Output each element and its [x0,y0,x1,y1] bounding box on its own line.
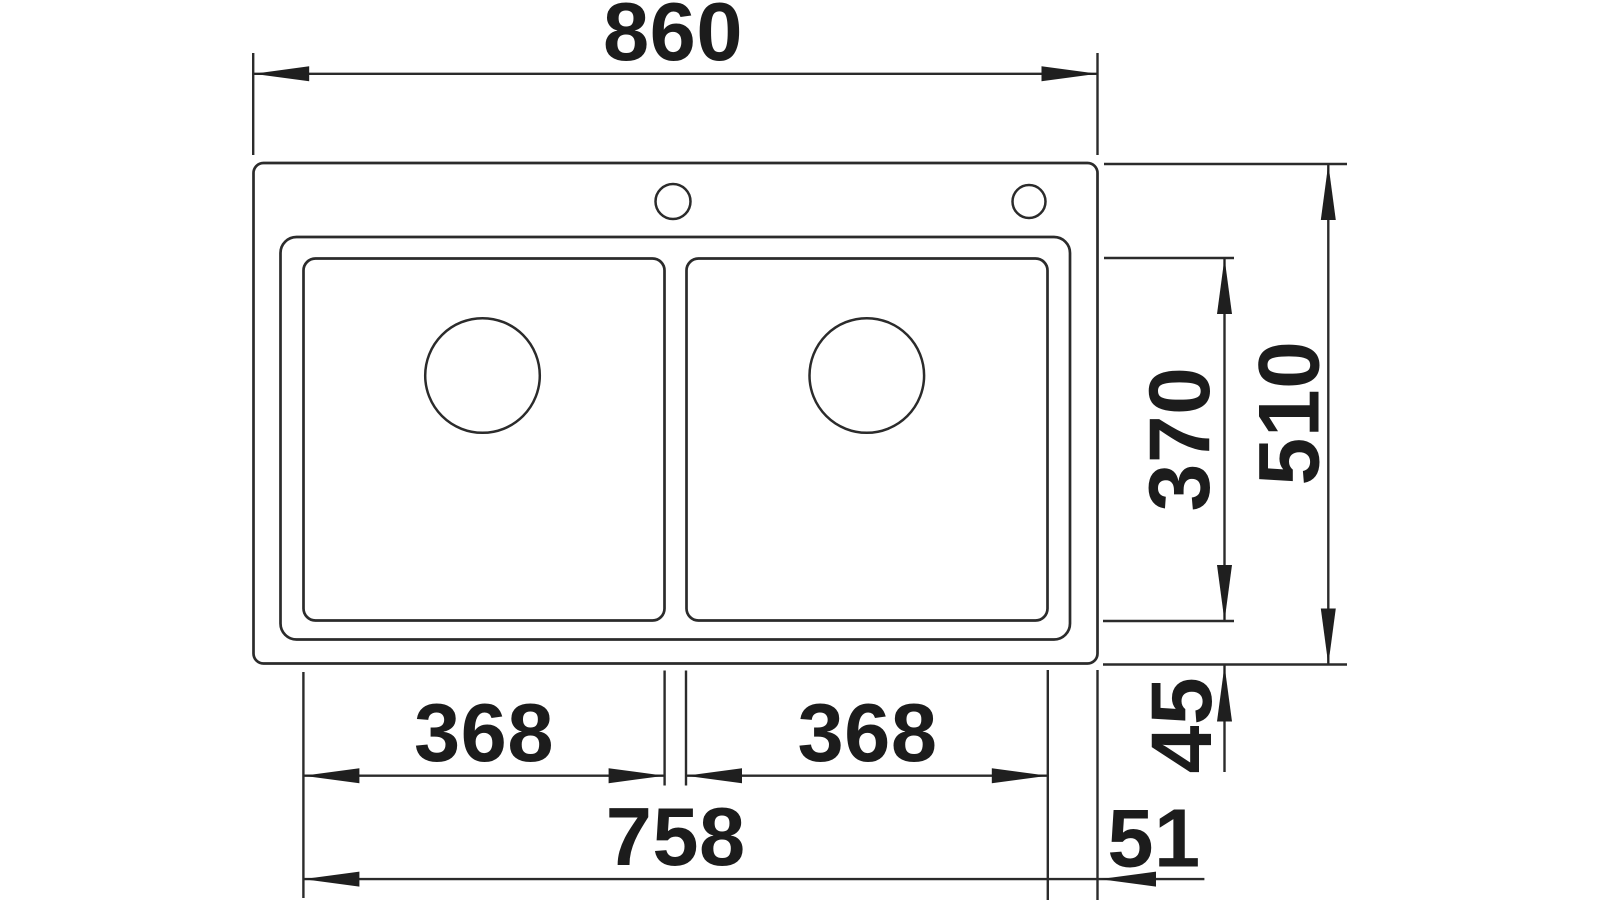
svg-text:510: 510 [1242,341,1338,486]
svg-text:370: 370 [1132,367,1228,512]
svg-text:368: 368 [414,686,554,779]
svg-text:51: 51 [1107,792,1200,885]
svg-text:758: 758 [606,790,746,883]
svg-text:45: 45 [1134,677,1230,774]
svg-text:860: 860 [603,0,743,78]
svg-text:368: 368 [798,686,938,779]
